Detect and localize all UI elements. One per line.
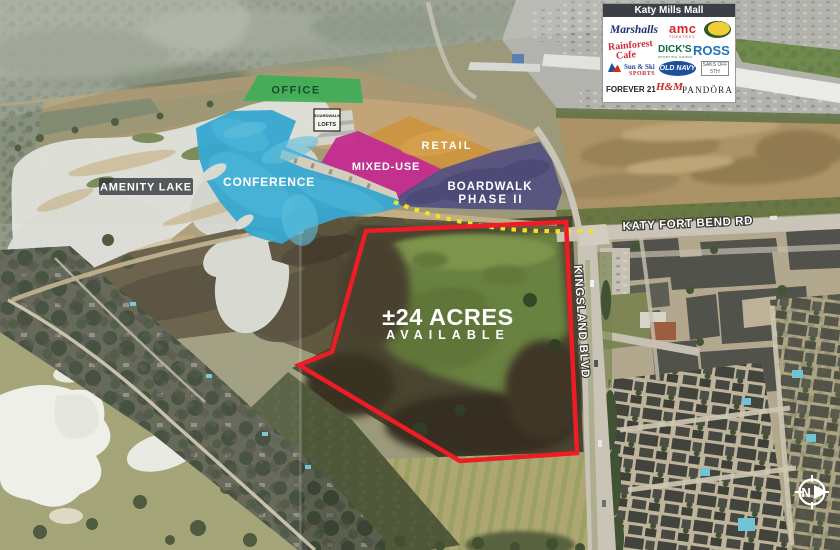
svg-text:OFFICE: OFFICE bbox=[271, 85, 320, 97]
svg-text:BOARDWALK: BOARDWALK bbox=[314, 113, 341, 118]
svg-text:BOARDWALK: BOARDWALK bbox=[447, 181, 532, 193]
svg-text:N: N bbox=[801, 485, 810, 500]
svg-text:AVAILABLE: AVAILABLE bbox=[386, 328, 510, 342]
svg-text:MIXED-USE: MIXED-USE bbox=[352, 161, 420, 173]
svg-text:PHASE II: PHASE II bbox=[458, 194, 523, 206]
svg-text:RETAIL: RETAIL bbox=[422, 140, 473, 152]
svg-text:AMENITY LAKE: AMENITY LAKE bbox=[100, 182, 192, 194]
svg-text:±24 ACRES: ±24 ACRES bbox=[382, 304, 513, 330]
svg-text:LOFTS: LOFTS bbox=[318, 122, 336, 128]
svg-text:CONFERENCE: CONFERENCE bbox=[223, 175, 315, 189]
